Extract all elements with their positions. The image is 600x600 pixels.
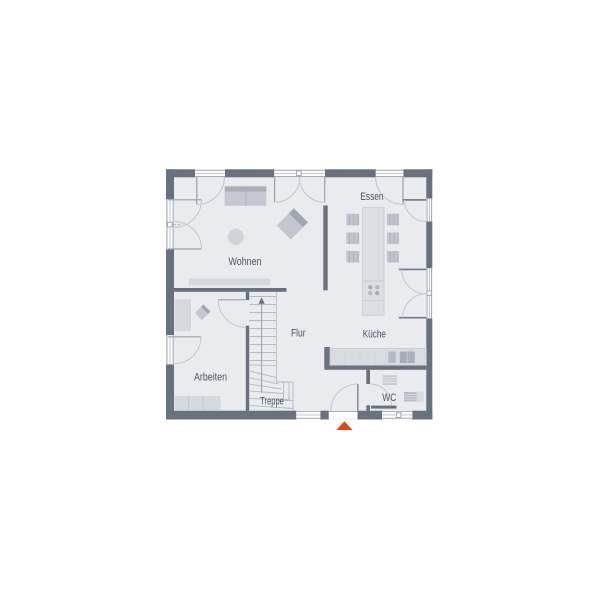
svg-text:Arbeiten: Arbeiten (194, 372, 227, 384)
svg-text:Küche: Küche (363, 329, 386, 341)
svg-text:Flur: Flur (291, 328, 306, 340)
svg-text:Essen: Essen (360, 191, 383, 203)
svg-text:Wohnen: Wohnen (229, 256, 262, 268)
svg-text:WC: WC (382, 392, 396, 404)
svg-text:Treppe: Treppe (260, 396, 284, 408)
